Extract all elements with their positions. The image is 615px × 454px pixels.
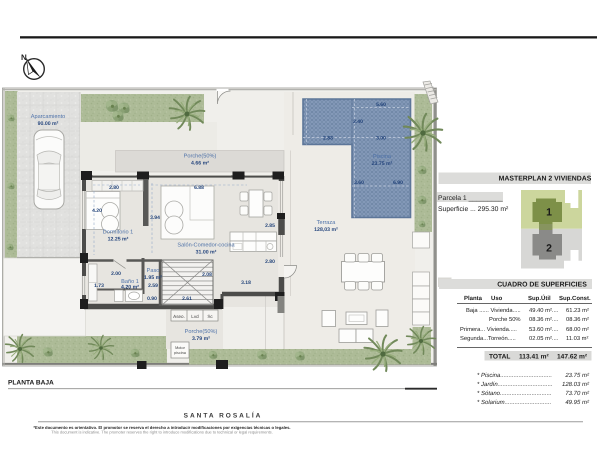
svg-text:3.60: 3.60	[354, 180, 364, 186]
svg-text:5.60: 5.60	[376, 102, 386, 108]
svg-text:2.80: 2.80	[265, 259, 275, 265]
svg-text:SANTA ROSALÍA: SANTA ROSALÍA	[184, 412, 263, 420]
svg-text:Lvd: Lvd	[191, 314, 199, 319]
svg-text:53.60 m²....: 53.60 m²....	[529, 326, 559, 333]
svg-text:2.61: 2.61	[182, 296, 192, 302]
svg-text:MASTERPLAN 2 VIVIENDAS: MASTERPLAN 2 VIVIENDAS	[499, 176, 592, 183]
svg-text:6.90: 6.90	[393, 180, 403, 186]
svg-text:49.40 m²....: 49.40 m²....	[529, 307, 559, 314]
svg-text:Aseo.: Aseo.	[173, 314, 185, 319]
svg-text:PLANTA BAJA: PLANTA BAJA	[8, 380, 54, 387]
svg-text:Segunda...Torreón.....: Segunda...Torreón.....	[460, 335, 516, 342]
svg-text:Sc: Sc	[207, 314, 213, 319]
svg-text:23.75 m²: 23.75 m²	[564, 372, 590, 379]
svg-text:3.79 m²: 3.79 m²	[192, 336, 210, 342]
svg-text:23.75 m²: 23.75 m²	[372, 161, 393, 167]
svg-text:Motor: Motor	[175, 346, 185, 350]
svg-text:Paso: Paso	[147, 268, 160, 274]
svg-text:This document is indicative. T: This document is indicative. The promote…	[51, 430, 273, 435]
svg-text:2.40: 2.40	[353, 119, 363, 125]
svg-text:147.62 m²: 147.62 m²	[557, 354, 588, 361]
svg-text:128,03 m²: 128,03 m²	[314, 227, 338, 233]
svg-text:2.00: 2.00	[111, 271, 121, 277]
svg-text:61.23 m²: 61.23 m²	[566, 307, 589, 314]
svg-text:3.94: 3.94	[150, 215, 160, 221]
svg-text:3.00: 3.00	[376, 136, 386, 142]
svg-text:Superficie ... 295.30 m²: Superficie ... 295.30 m²	[438, 206, 509, 213]
svg-text:2.85: 2.85	[265, 223, 275, 229]
svg-text:113.41 m²: 113.41 m²	[519, 354, 549, 361]
svg-text:* Piscina.....................: * Piscina...............................	[477, 372, 552, 379]
svg-text:08.36 m²....: 08.36 m²....	[529, 316, 559, 323]
svg-text:2.88: 2.88	[323, 136, 333, 142]
svg-text:Piscina: Piscina	[373, 153, 392, 160]
svg-text:11.03 m²: 11.03 m²	[566, 335, 589, 342]
svg-text:Sup.Const.: Sup.Const.	[559, 295, 591, 302]
svg-text:N: N	[21, 53, 27, 62]
svg-text:2.80: 2.80	[109, 185, 119, 191]
svg-text:0.90: 0.90	[147, 296, 157, 302]
svg-text:piscina: piscina	[174, 351, 187, 355]
svg-text:12.25 m²: 12.25 m²	[108, 237, 129, 243]
svg-text:4.66 m²: 4.66 m²	[191, 161, 209, 167]
svg-text:Porche(50%): Porche(50%)	[184, 153, 217, 160]
svg-text:Porche 50%: Porche 50%	[489, 316, 521, 323]
svg-text:49.95 m²: 49.95 m²	[565, 399, 590, 406]
svg-text:2.59: 2.59	[148, 283, 158, 289]
svg-text:73.70 m²: 73.70 m²	[565, 390, 590, 397]
svg-text:4.20 m²: 4.20 m²	[121, 284, 139, 290]
svg-text:* Sótano......................: * Sótano...............................	[477, 390, 552, 397]
svg-text:31.00 m²: 31.00 m²	[196, 250, 217, 256]
svg-text:* Jardín......................: * Jardín................................…	[477, 381, 553, 388]
svg-text:TOTAL: TOTAL	[489, 354, 510, 361]
svg-text:1: 1	[546, 207, 552, 219]
svg-text:Baja ...... Vivienda.....: Baja ...... Vivienda.....	[466, 307, 521, 314]
svg-text:Salón-Comedor-cocina: Salón-Comedor-cocina	[177, 242, 235, 249]
svg-text:1.73: 1.73	[94, 283, 104, 289]
svg-text:1.95 m²: 1.95 m²	[144, 275, 162, 281]
svg-text:* Solarium....................: * Solarium............................	[477, 399, 551, 406]
svg-text:68.00 m²: 68.00 m²	[566, 326, 589, 333]
svg-text:2: 2	[546, 243, 552, 255]
svg-text:Sup.Útil: Sup.Útil	[528, 294, 551, 302]
svg-text:Terraza: Terraza	[317, 220, 337, 226]
svg-text:6.88: 6.88	[194, 185, 204, 191]
svg-text:Dormitorio 1: Dormitorio 1	[103, 229, 133, 236]
svg-text:02.05 m²....: 02.05 m²....	[529, 335, 559, 342]
svg-text:128.03 m²: 128.03 m²	[562, 381, 590, 388]
svg-text:Primera... Vivienda.....: Primera... Vivienda.....	[460, 326, 517, 333]
svg-text:90.00 m²: 90.00 m²	[38, 121, 59, 127]
svg-text:Uso: Uso	[491, 295, 503, 302]
svg-text:08.36 m²: 08.36 m²	[566, 316, 589, 323]
svg-text:Aparcamiento: Aparcamiento	[31, 113, 66, 120]
svg-text:Porche(50%): Porche(50%)	[185, 328, 218, 335]
svg-text:3.18: 3.18	[241, 280, 251, 286]
svg-text:Parcela 1 _________: Parcela 1 _________	[438, 195, 503, 202]
svg-text:4.20: 4.20	[92, 208, 102, 214]
svg-text:2.08: 2.08	[202, 272, 212, 278]
svg-text:Planta: Planta	[464, 295, 483, 302]
svg-text:CUADRO DE SUPERFICIES: CUADRO DE SUPERFICIES	[497, 282, 587, 289]
